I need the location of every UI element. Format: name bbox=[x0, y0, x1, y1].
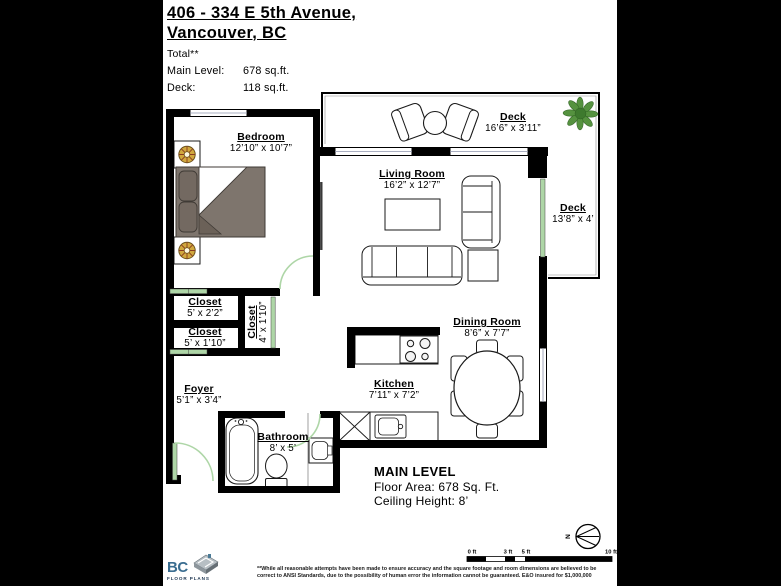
bathroom-sink bbox=[309, 438, 333, 463]
lamp-icon bbox=[179, 146, 195, 162]
north-label: N bbox=[565, 534, 572, 539]
room-label-bathroom: Bathroom 8’ x 5’ bbox=[257, 431, 308, 455]
loveseat bbox=[462, 176, 500, 248]
living-furniture bbox=[321, 176, 500, 285]
room-label-deck-top: Deck 16’6” x 3’11” bbox=[485, 111, 541, 135]
room-dims: 13’8” x 4’ bbox=[552, 214, 594, 226]
area-label: Deck: bbox=[167, 82, 243, 94]
room-dims: 5’1” x 3’4” bbox=[176, 395, 221, 407]
deck-table bbox=[424, 112, 447, 135]
fridge bbox=[339, 412, 370, 441]
page-title-line2: Vancouver, BC bbox=[167, 24, 477, 44]
room-label-closet-1: Closet 5’ x 2’2” bbox=[187, 296, 223, 320]
house-icon bbox=[188, 551, 222, 575]
room-dims: 5’ x 1’10” bbox=[184, 338, 225, 350]
bed bbox=[176, 167, 265, 237]
header: 406 - 334 E 5th Avenue, Vancouver, BC To… bbox=[167, 4, 477, 94]
room-label-closet-3: Closet 4’ x 1’10” bbox=[246, 301, 270, 342]
window bbox=[540, 348, 547, 402]
bc-floor-plans-logo: BC FLOOR PLANS bbox=[167, 551, 262, 581]
window bbox=[190, 110, 247, 117]
scale-label: 5 ft bbox=[522, 550, 531, 556]
coffee-table bbox=[385, 199, 440, 230]
room-name: Foyer bbox=[176, 383, 221, 395]
room-name: Dining Room bbox=[453, 316, 521, 328]
floor-plan-page: 0 ft 3 ft 5 ft 10 ft N 406 - 334 E 5th A… bbox=[0, 0, 781, 586]
room-label-foyer: Foyer 5’1” x 3’4” bbox=[176, 383, 221, 407]
kitchen-sink bbox=[375, 415, 406, 438]
closet-door bbox=[271, 297, 275, 348]
logo-subtitle: FLOOR PLANS bbox=[167, 576, 262, 581]
window bbox=[450, 148, 528, 156]
room-dims: 12’10” x 10’7” bbox=[230, 143, 292, 155]
area-value: 678 sq.ft. bbox=[243, 65, 289, 77]
room-dims: 8’6” x 7’7” bbox=[453, 328, 521, 340]
entry-door-leaf bbox=[173, 443, 178, 480]
sliding-patio-door bbox=[541, 179, 546, 257]
dining-table bbox=[454, 351, 520, 425]
disclaimer-text: **While all reasonable attempts have bee… bbox=[257, 566, 609, 580]
room-name: Bathroom bbox=[257, 431, 308, 443]
room-label-dining-room: Dining Room 8’6” x 7’7” bbox=[453, 316, 521, 340]
room-name: Kitchen bbox=[369, 378, 419, 390]
area-row: Deck: 118 sq.ft. bbox=[167, 82, 477, 94]
room-dims: 7’11” x 7’2” bbox=[369, 390, 419, 402]
room-name: Closet bbox=[246, 301, 258, 342]
area-row: Main Level: 678 sq.ft. bbox=[167, 65, 477, 77]
compass-icon: N bbox=[565, 525, 600, 549]
room-name: Deck bbox=[485, 111, 541, 123]
room-dims: 16’2” x 12’7” bbox=[379, 180, 445, 192]
total-label: Total** bbox=[167, 48, 477, 60]
room-name: Closet bbox=[184, 326, 225, 338]
page-title-line1: 406 - 334 E 5th Avenue, bbox=[167, 4, 477, 24]
room-label-bedroom: Bedroom 12’10” x 10’7” bbox=[230, 131, 292, 155]
sofa bbox=[362, 246, 462, 285]
level-floor-area: Floor Area: 678 Sq. Ft. bbox=[374, 480, 499, 495]
plant bbox=[563, 97, 598, 130]
scale-label: 3 ft bbox=[504, 550, 513, 556]
room-dims: 8’ x 5’ bbox=[257, 443, 308, 455]
level-summary: MAIN LEVEL Floor Area: 678 Sq. Ft. Ceili… bbox=[374, 465, 499, 509]
dining-set bbox=[451, 340, 523, 438]
room-dims: 5’ x 2’2” bbox=[187, 308, 223, 320]
side-table bbox=[468, 250, 498, 281]
room-name: Living Room bbox=[379, 168, 445, 180]
window bbox=[335, 148, 412, 156]
bedroom-door-arc bbox=[280, 256, 313, 289]
room-name: Closet bbox=[187, 296, 223, 308]
room-label-kitchen: Kitchen 7’11” x 7’2” bbox=[369, 378, 419, 402]
lamp-icon bbox=[179, 242, 195, 258]
room-name: Deck bbox=[552, 202, 594, 214]
room-dims: 4’ x 1’10” bbox=[258, 301, 270, 342]
level-title: MAIN LEVEL bbox=[374, 465, 499, 480]
room-label-deck-right: Deck 13’8” x 4’ bbox=[552, 202, 594, 226]
toilet bbox=[266, 454, 288, 491]
room-label-living-room: Living Room 16’2” x 12’7” bbox=[379, 168, 445, 192]
room-label-closet-2: Closet 5’ x 1’10” bbox=[184, 326, 225, 350]
scale-bar: 0 ft 3 ft 5 ft 10 ft bbox=[467, 550, 617, 562]
area-value: 118 sq.ft. bbox=[243, 82, 289, 94]
bedroom-furniture bbox=[174, 141, 265, 264]
area-label: Main Level: bbox=[167, 65, 243, 77]
room-dims: 16’6” x 3’11” bbox=[485, 123, 541, 135]
level-ceiling-height: Ceiling Height: 8’ bbox=[374, 494, 499, 509]
logo-brand: BC bbox=[167, 560, 188, 575]
room-name: Bedroom bbox=[230, 131, 292, 143]
bathtub bbox=[226, 418, 258, 484]
scale-label: 0 ft bbox=[468, 550, 477, 556]
scale-label: 10 ft bbox=[605, 550, 617, 556]
